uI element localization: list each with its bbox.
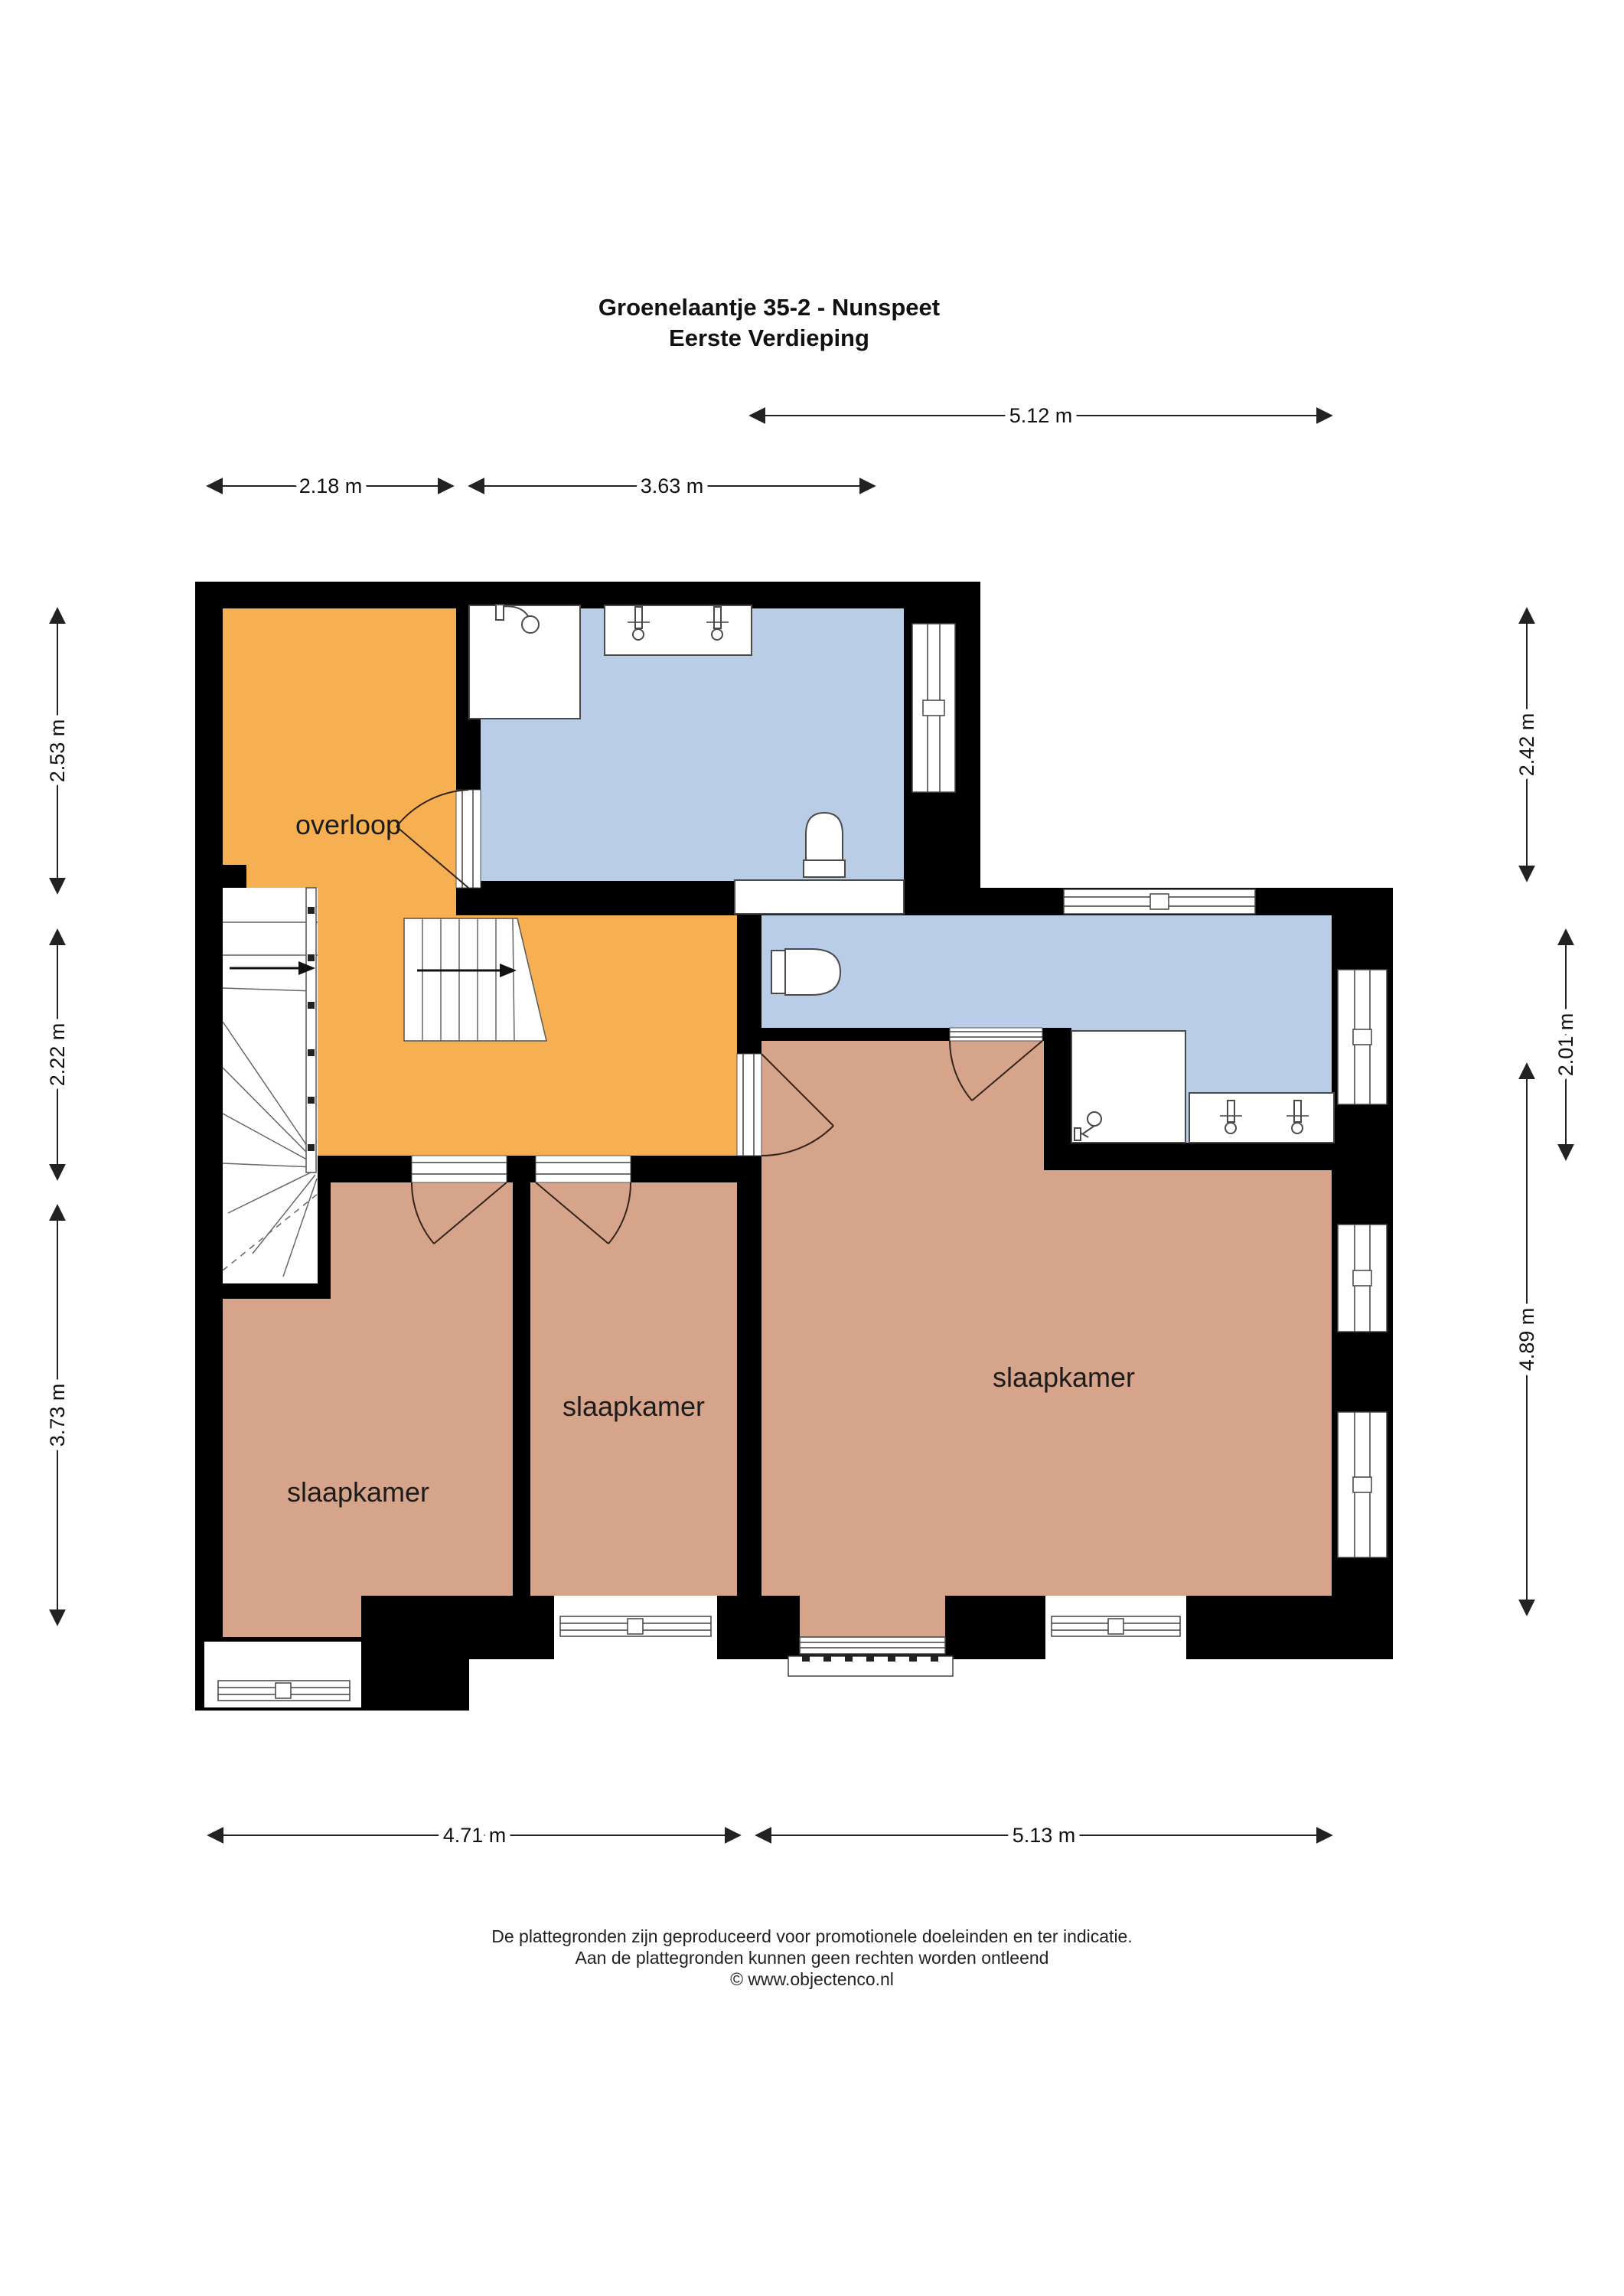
stair-railing bbox=[306, 888, 316, 1172]
page-title: Groenelaantje 35-2 - Nunspeet bbox=[598, 294, 940, 321]
toilet-icon bbox=[785, 949, 840, 995]
toilet-icon bbox=[771, 951, 785, 993]
door-swing-icon bbox=[456, 790, 481, 888]
wall-stub-left bbox=[223, 865, 246, 888]
dim-top-left-2: 3.63 m bbox=[641, 475, 704, 497]
dim-bottom-2: 5.13 m bbox=[1013, 1824, 1076, 1847]
dim-bottom-1: 4.71 m bbox=[443, 1824, 507, 1847]
shower-head-icon bbox=[1088, 1112, 1101, 1126]
footer-disclaimer-1: De plattegronden zijn geproduceerd voor … bbox=[491, 1926, 1133, 1946]
dim-top-left-1: 2.18 m bbox=[299, 475, 363, 497]
shower-cabin bbox=[1071, 1031, 1185, 1143]
door-swing-icon bbox=[950, 1028, 1042, 1041]
dim-top: 5.12 m bbox=[1009, 404, 1073, 427]
footer-disclaimer-2: Aan de plattegronden kunnen geen rechten… bbox=[576, 1948, 1049, 1968]
dim-right-3: 4.89 m bbox=[1515, 1308, 1538, 1371]
washbasin-unit bbox=[1189, 1093, 1334, 1143]
dim-right-1: 2.42 m bbox=[1515, 713, 1538, 777]
dim-left-3: 3.73 m bbox=[46, 1384, 69, 1447]
door-swing-icon bbox=[536, 1156, 631, 1182]
toilet-counter bbox=[735, 880, 904, 914]
dim-right-2: 2.01 m bbox=[1554, 1013, 1577, 1077]
page-subtitle: Eerste Verdieping bbox=[669, 325, 869, 351]
door-swing-icon bbox=[412, 1156, 507, 1182]
door-swing-icon bbox=[737, 1054, 761, 1156]
washbasin-unit bbox=[605, 605, 752, 655]
toilet-icon bbox=[806, 813, 843, 863]
dim-left-1: 2.53 m bbox=[46, 719, 69, 783]
stairwell-floor bbox=[223, 888, 318, 1283]
room-label-bedroom-middle: slaapkamer bbox=[563, 1391, 705, 1422]
room-label-landing: overloop bbox=[295, 809, 401, 840]
room-label-bedroom-right: slaapkamer bbox=[993, 1362, 1135, 1393]
balcony-door-icon bbox=[800, 1637, 945, 1654]
room-bedroom-middle bbox=[530, 1182, 737, 1596]
shower-head-icon bbox=[522, 616, 539, 633]
floorplan-page: Groenelaantje 35-2 - Nunspeet Eerste Ver… bbox=[0, 0, 1624, 2296]
toilet-icon bbox=[804, 860, 845, 877]
dim-left-2: 2.22 m bbox=[46, 1023, 69, 1087]
room-label-bedroom-left: slaapkamer bbox=[287, 1476, 429, 1508]
footer-copyright: © www.objectenco.nl bbox=[730, 1969, 894, 1989]
